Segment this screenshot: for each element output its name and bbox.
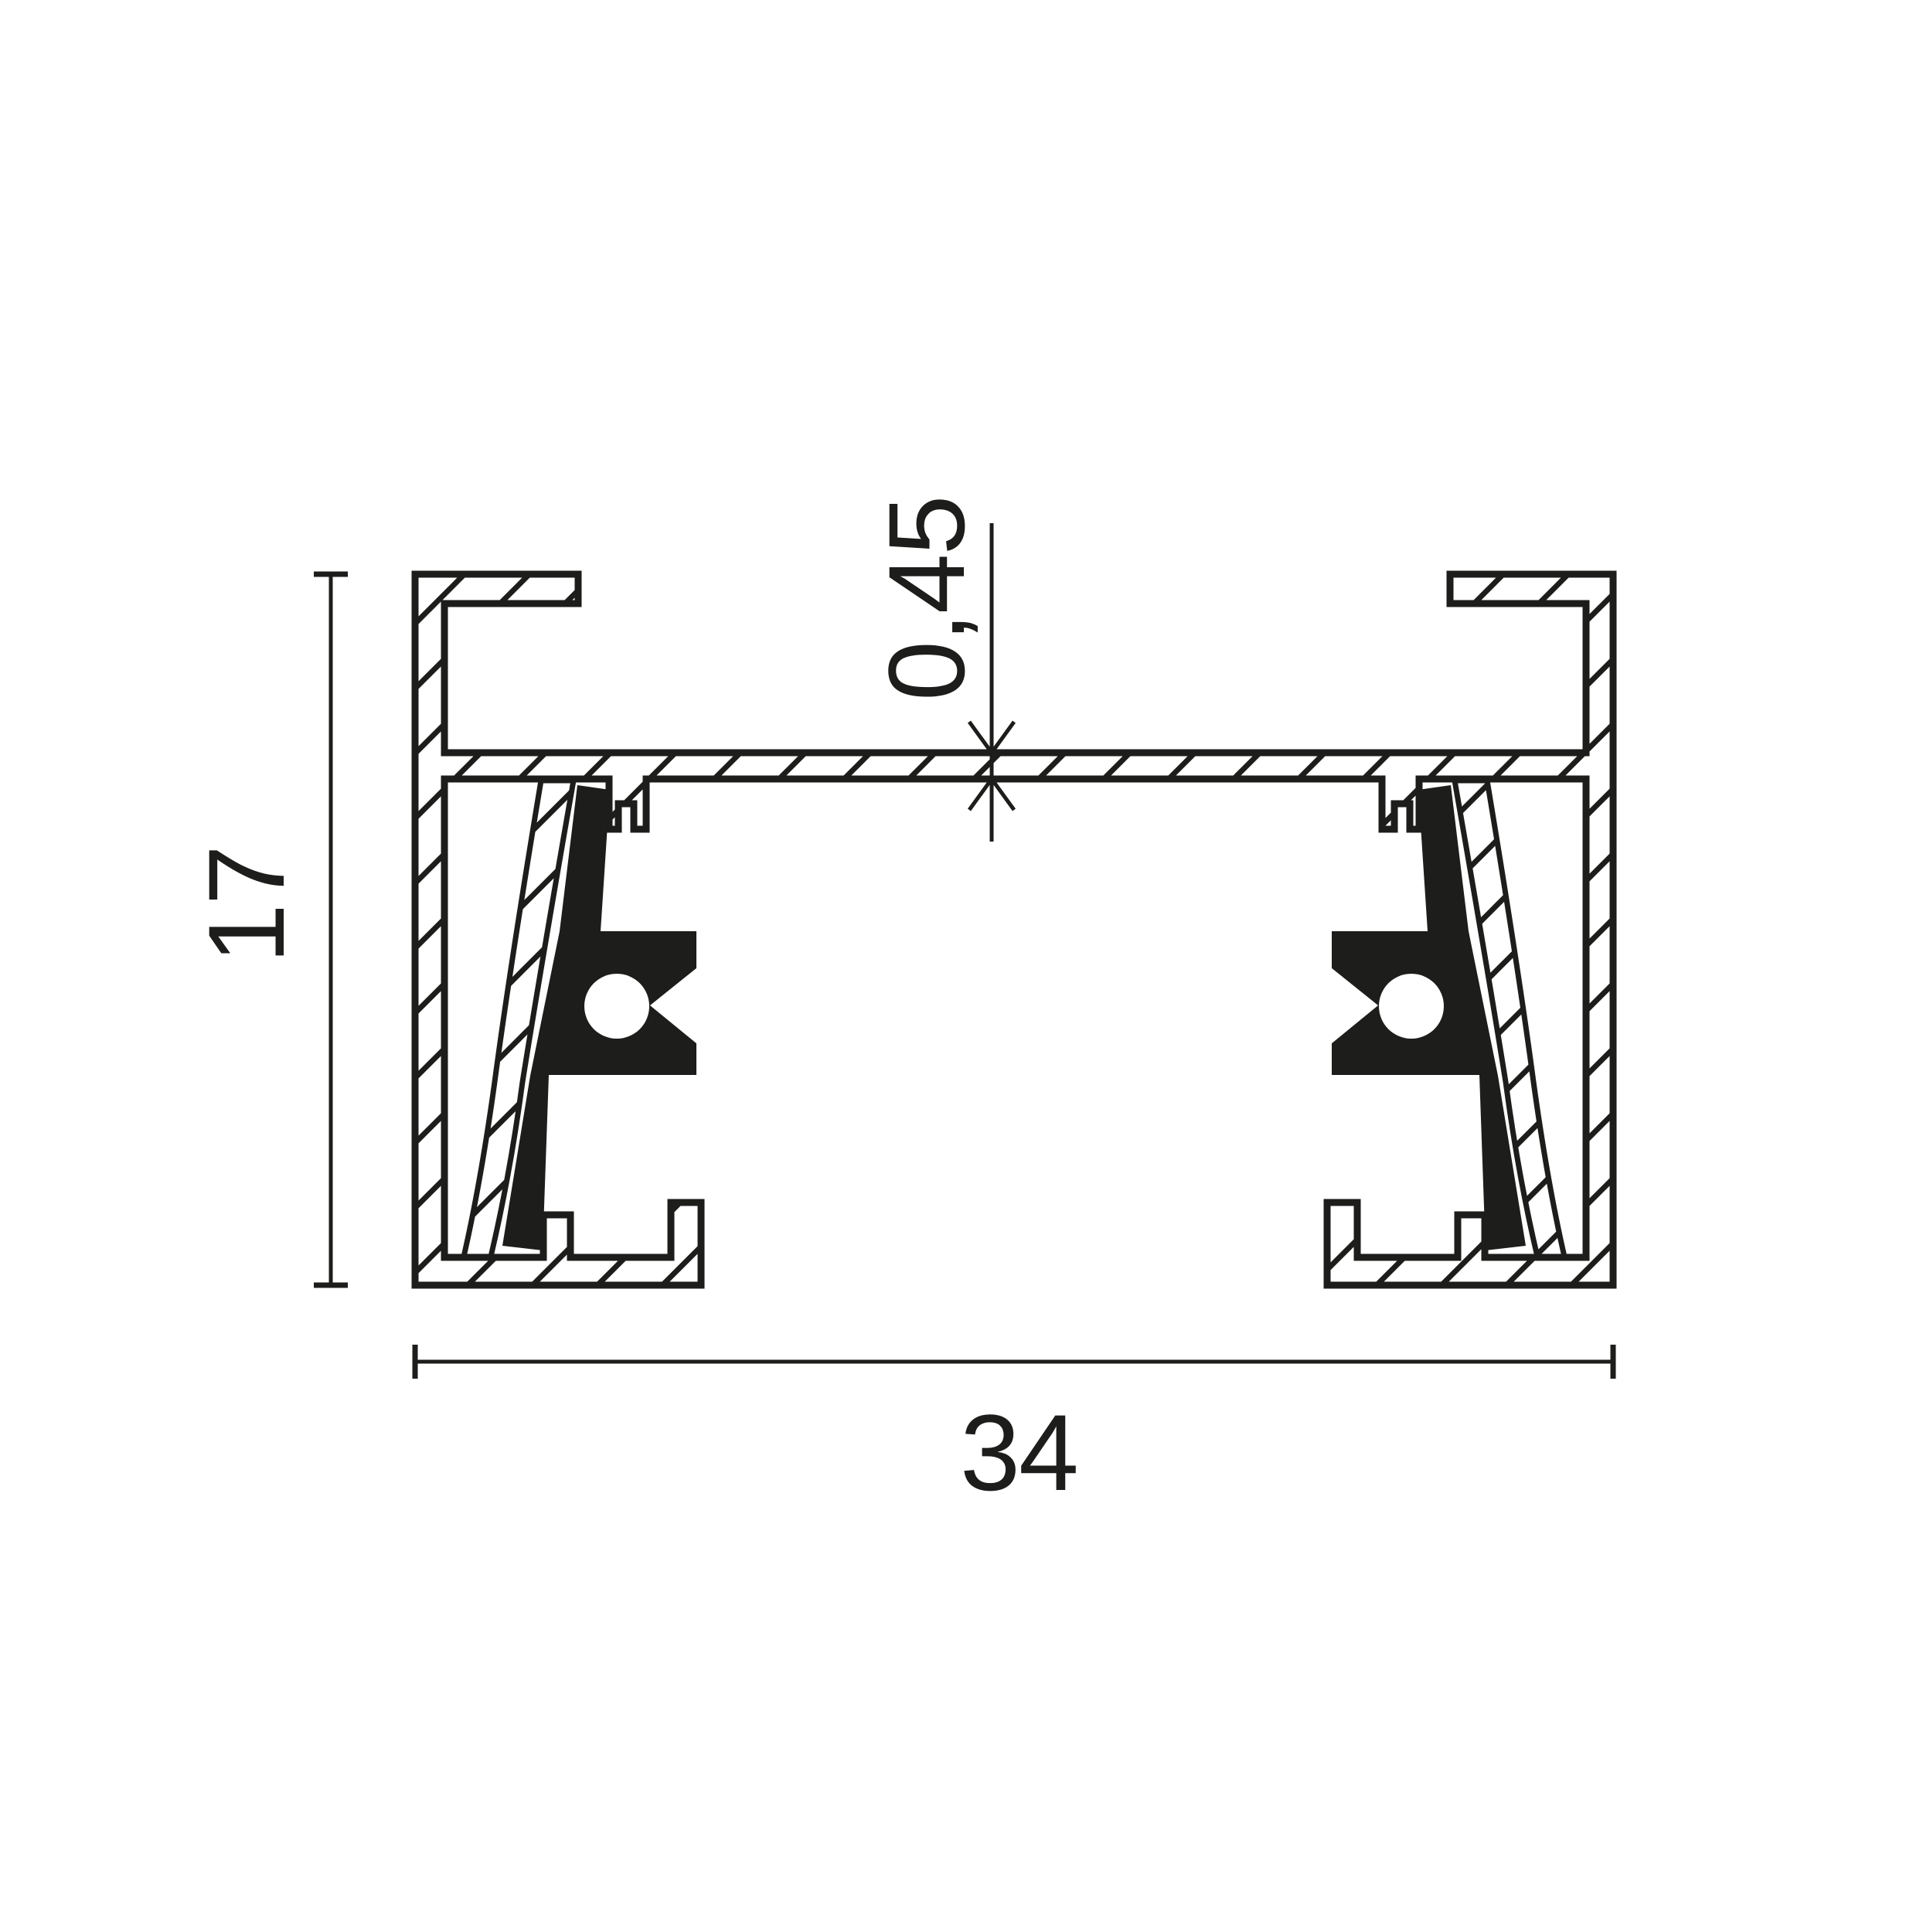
- technical-drawing: 0,45 17 34: [0, 0, 1930, 1932]
- dim-height-label: 17: [186, 846, 307, 964]
- dim-width-label: 34: [960, 1392, 1077, 1513]
- dim-web-label: 0,45: [866, 497, 987, 701]
- canvas-background: [0, 0, 1930, 1932]
- conductor-contact-hole-left: [584, 974, 649, 1039]
- conductor-contact-hole-right: [1379, 974, 1444, 1039]
